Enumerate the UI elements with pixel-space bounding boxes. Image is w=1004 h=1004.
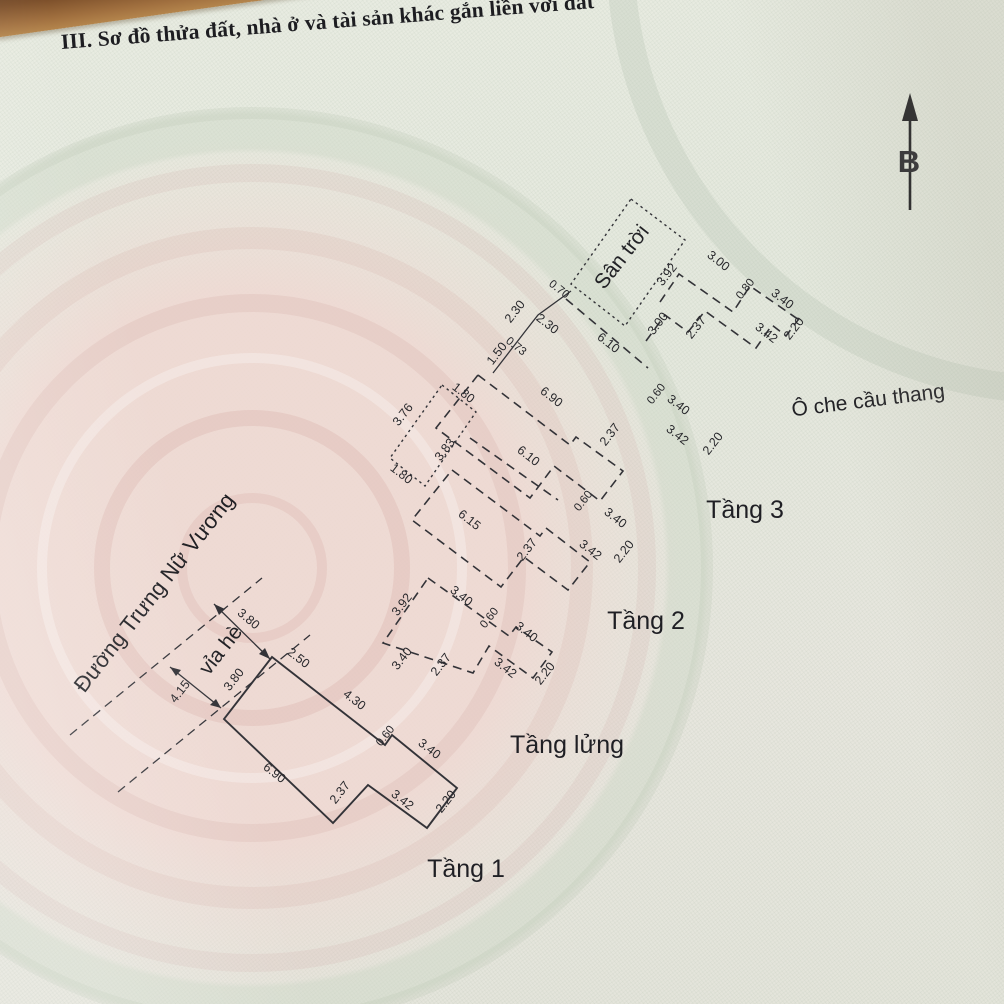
dim-label: 6.90 (261, 760, 289, 786)
dim-label: 3.42 (753, 320, 781, 346)
dim-label: 6.90 (538, 384, 566, 410)
dim-label: 3.40 (448, 583, 476, 609)
floor-plan-tang-lung: 3.92 3.40 0.60 3.40 3.40 2.20 2.37 3.42 … (383, 578, 624, 759)
dim-label: 6.15 (456, 507, 484, 533)
roof-plan: 1.50 0.73 2.30 2.30 0.70 6.10 3.92 3.00 … (484, 199, 946, 421)
floor-label-tang-lung: Tầng lửng (510, 731, 624, 759)
north-arrowhead-icon (902, 93, 918, 121)
floor-plan-tang-2: 6.15 0.60 3.40 2.37 3.42 2.20 Tầng 2 (412, 470, 685, 635)
dim-label: 6.10 (515, 443, 543, 469)
dim-label: 2.37 (597, 421, 623, 449)
north-label: B (898, 144, 920, 179)
dim-label: 3.00 (645, 310, 671, 338)
dim-label: 2.20 (611, 538, 637, 566)
stair-cover-label: Ô che cầu thang (790, 380, 946, 422)
dim-label: 2.20 (532, 660, 558, 688)
floor-label-tang-1: Tầng 1 (427, 855, 505, 883)
dim-label: 2.37 (428, 651, 454, 679)
dim-label: 3.40 (602, 505, 630, 531)
dim-label: 3.92 (389, 591, 415, 619)
dim-label: 3.40 (665, 392, 693, 418)
dim-label: 2.37 (683, 314, 709, 342)
dim-label: 0.70 (546, 278, 571, 301)
dim-label: 3.92 (654, 261, 680, 289)
dim-label: 0.60 (572, 489, 595, 514)
north-arrow: B (898, 93, 920, 210)
dim-label: 3.42 (492, 655, 520, 681)
sky-yard-label: Sân trời (590, 221, 654, 294)
dim-label: 2.50 (285, 645, 313, 671)
dim-label: 2.37 (514, 536, 540, 564)
dim-label: 4.30 (341, 687, 369, 713)
dim-label: 6.10 (595, 330, 623, 356)
dim-label: 3.80 (221, 666, 247, 694)
dim-label: 2.37 (327, 779, 353, 807)
certificate-photo: III. Sơ đồ thửa đất, nhà ở và tài sản kh… (0, 0, 1004, 1004)
dim-label: 1.80 (450, 380, 478, 406)
floor-label-tang-2: Tầng 2 (607, 607, 685, 635)
dim-label: 3.42 (664, 422, 692, 448)
dim-label: 1.80 (388, 461, 416, 487)
dim-label: 0.60 (478, 606, 501, 631)
dim-label: 3.76 (390, 401, 416, 429)
dim-label: 2.20 (781, 315, 807, 343)
dim-label: 3.40 (389, 645, 415, 673)
floor-plan-tang-1: 3.80 3.80 2.50 4.30 0.60 3.40 2.20 3.42 … (214, 604, 505, 883)
dim-label: 2.20 (700, 430, 726, 458)
dim-label: 3.42 (577, 537, 605, 563)
dim-label: 3.00 (705, 248, 733, 274)
dim-label: 3.83 (432, 436, 458, 464)
dim-label: 2.30 (502, 298, 528, 326)
site-diagram: B Đường Trưng Nữ Vương vỉa hè 4.15 3.80 … (0, 0, 1004, 1004)
floor-label-tang-3: Tầng 3 (706, 496, 784, 524)
street-group: Đường Trưng Nữ Vương vỉa hè 4.15 (69, 488, 310, 792)
